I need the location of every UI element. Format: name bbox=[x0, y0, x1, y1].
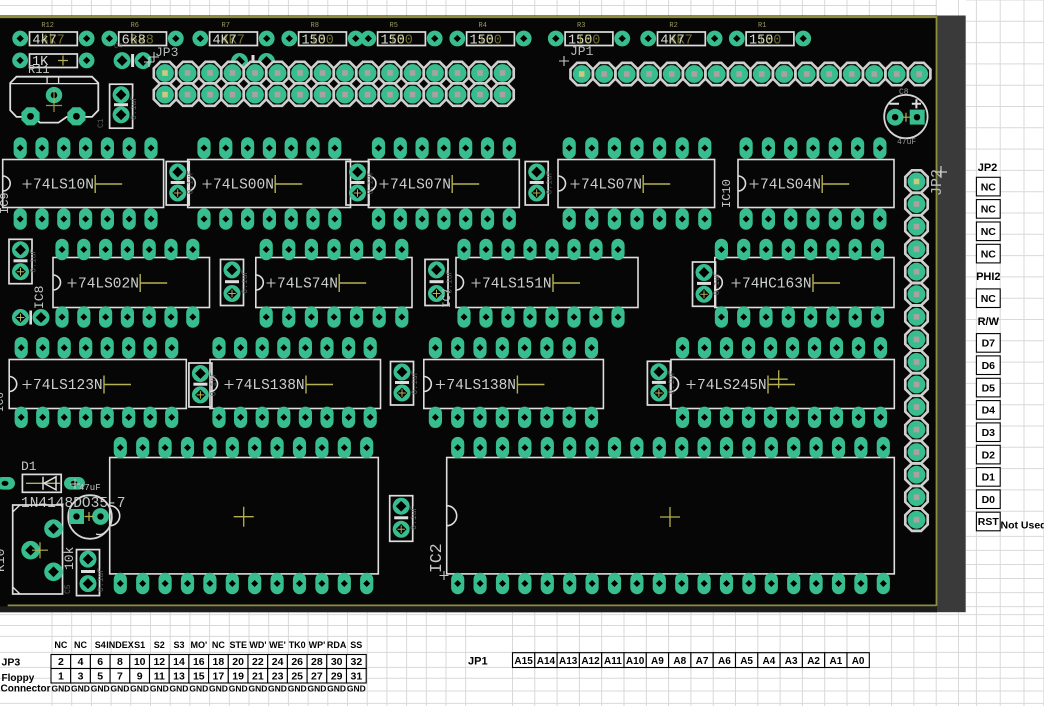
svg-text:8: 8 bbox=[117, 656, 123, 668]
svg-text:GND: GND bbox=[268, 684, 287, 694]
svg-text:JP1: JP1 bbox=[570, 44, 594, 59]
svg-text:GND: GND bbox=[111, 684, 130, 694]
svg-text:A8: A8 bbox=[673, 656, 686, 667]
svg-text:S2: S2 bbox=[154, 640, 165, 650]
svg-text:GND: GND bbox=[307, 684, 326, 694]
svg-text:0.1uF: 0.1uF bbox=[209, 372, 218, 396]
svg-text:D2: D2 bbox=[982, 449, 996, 461]
svg-text:GND: GND bbox=[130, 684, 149, 694]
svg-text:R7: R7 bbox=[222, 22, 230, 30]
svg-text:23: 23 bbox=[272, 671, 284, 683]
svg-text:NC: NC bbox=[981, 248, 997, 260]
svg-text:JP2: JP2 bbox=[978, 162, 998, 174]
svg-text:D4: D4 bbox=[982, 405, 996, 417]
svg-text:150: 150 bbox=[757, 34, 781, 49]
svg-text:18: 18 bbox=[213, 656, 225, 668]
svg-text:IC6: IC6 bbox=[0, 392, 7, 412]
svg-text:10k: 10k bbox=[62, 546, 77, 570]
svg-text:JP1: JP1 bbox=[468, 656, 488, 668]
svg-text:25: 25 bbox=[291, 671, 303, 683]
svg-text:INDEX: INDEX bbox=[106, 640, 134, 650]
svg-text:D7: D7 bbox=[982, 338, 996, 350]
svg-text:74LS04N: 74LS04N bbox=[760, 178, 821, 194]
svg-text:30: 30 bbox=[331, 656, 343, 668]
svg-text:4k7: 4k7 bbox=[40, 34, 64, 49]
svg-text:74LS123N: 74LS123N bbox=[33, 378, 103, 394]
svg-text:16: 16 bbox=[193, 656, 205, 668]
svg-text:3: 3 bbox=[78, 671, 84, 683]
svg-text:R4: R4 bbox=[479, 22, 487, 30]
svg-text:MO': MO' bbox=[190, 640, 207, 650]
svg-text:WE': WE' bbox=[269, 640, 286, 650]
svg-text:C1: C1 bbox=[97, 118, 106, 128]
svg-text:22: 22 bbox=[252, 656, 264, 668]
svg-text:IC8: IC8 bbox=[32, 286, 47, 309]
svg-text:R6: R6 bbox=[131, 22, 139, 30]
svg-text:NC: NC bbox=[212, 640, 225, 650]
svg-text:A7: A7 bbox=[696, 656, 709, 667]
svg-text:74LS138N: 74LS138N bbox=[446, 378, 516, 394]
svg-text:D0: D0 bbox=[982, 494, 996, 506]
svg-text:PHI2: PHI2 bbox=[976, 271, 1000, 283]
svg-text:4K7: 4K7 bbox=[668, 34, 692, 49]
svg-text:2: 2 bbox=[58, 656, 64, 668]
svg-text:0.1uF: 0.1uF bbox=[411, 370, 420, 394]
svg-text:0.1uF: 0.1uF bbox=[30, 249, 39, 273]
svg-text:R10: R10 bbox=[0, 549, 8, 572]
svg-text:R3: R3 bbox=[577, 22, 585, 30]
svg-text:TK0: TK0 bbox=[289, 640, 306, 650]
svg-text:C8: C8 bbox=[899, 88, 909, 97]
svg-text:A10: A10 bbox=[626, 656, 645, 667]
svg-text:NC: NC bbox=[981, 226, 997, 238]
svg-text:JP2: JP2 bbox=[929, 169, 946, 196]
svg-text:D1: D1 bbox=[982, 472, 996, 484]
svg-text:1: 1 bbox=[58, 671, 64, 683]
svg-text:A0: A0 bbox=[852, 656, 865, 667]
svg-text:0.1uF: 0.1uF bbox=[130, 96, 139, 120]
svg-text:4K7: 4K7 bbox=[221, 34, 245, 49]
svg-text:GND: GND bbox=[150, 684, 169, 694]
svg-text:C4: C4 bbox=[114, 43, 122, 51]
svg-text:JP3: JP3 bbox=[2, 657, 21, 669]
svg-text:A1: A1 bbox=[830, 656, 843, 667]
svg-text:GND: GND bbox=[327, 684, 346, 694]
svg-text:74LS245N: 74LS245N bbox=[697, 378, 767, 394]
svg-text:A6: A6 bbox=[718, 656, 731, 667]
svg-text:4: 4 bbox=[78, 656, 84, 668]
svg-text:R2: R2 bbox=[669, 22, 677, 30]
svg-text:R/W: R/W bbox=[978, 316, 1000, 328]
svg-text:12: 12 bbox=[153, 656, 165, 668]
svg-text:GND: GND bbox=[288, 684, 307, 694]
svg-text:A2: A2 bbox=[807, 656, 820, 667]
svg-text:NC: NC bbox=[74, 640, 87, 650]
svg-text:74LS07N: 74LS07N bbox=[581, 178, 642, 194]
svg-text:JP3: JP3 bbox=[155, 45, 178, 60]
svg-text:A14: A14 bbox=[537, 656, 556, 667]
svg-text:R11: R11 bbox=[28, 63, 50, 77]
svg-text:D1: D1 bbox=[21, 459, 37, 474]
svg-text:STE: STE bbox=[229, 640, 247, 650]
svg-text:NC: NC bbox=[981, 204, 997, 216]
svg-text:D3: D3 bbox=[982, 427, 996, 439]
svg-text:S3: S3 bbox=[173, 640, 184, 650]
svg-text:74LS10N: 74LS10N bbox=[33, 178, 94, 194]
svg-text:24: 24 bbox=[272, 656, 284, 668]
svg-text:A9: A9 bbox=[651, 656, 664, 667]
svg-text:32: 32 bbox=[351, 656, 363, 668]
svg-text:74LS74N: 74LS74N bbox=[277, 277, 338, 293]
svg-text:A12: A12 bbox=[581, 656, 600, 667]
svg-text:11: 11 bbox=[154, 671, 165, 683]
svg-text:27: 27 bbox=[311, 671, 323, 683]
svg-text:Floppy: Floppy bbox=[2, 673, 35, 684]
svg-text:S1: S1 bbox=[134, 640, 145, 650]
svg-text:0.1uF: 0.1uF bbox=[367, 170, 376, 194]
svg-text:WD': WD' bbox=[249, 640, 266, 650]
svg-text:D5: D5 bbox=[982, 382, 996, 394]
svg-text:GND: GND bbox=[170, 684, 189, 694]
svg-text:47uF: 47uF bbox=[79, 483, 101, 493]
svg-text:9: 9 bbox=[137, 671, 143, 683]
svg-text:S4: S4 bbox=[95, 640, 106, 650]
svg-text:GND: GND bbox=[209, 684, 228, 694]
svg-text:15: 15 bbox=[193, 671, 205, 683]
svg-text:7: 7 bbox=[117, 671, 123, 683]
svg-text:GND: GND bbox=[189, 684, 208, 694]
svg-text:28: 28 bbox=[311, 656, 323, 668]
svg-text:NC: NC bbox=[981, 293, 997, 305]
svg-text:R12: R12 bbox=[41, 22, 54, 30]
svg-text:74LS02N: 74LS02N bbox=[78, 277, 139, 293]
svg-text:17: 17 bbox=[213, 671, 225, 683]
svg-text:150: 150 bbox=[389, 34, 413, 49]
svg-text:74LS07N: 74LS07N bbox=[390, 178, 451, 194]
svg-text:R5: R5 bbox=[390, 22, 398, 30]
svg-text:A13: A13 bbox=[559, 656, 578, 667]
svg-text:A4: A4 bbox=[763, 656, 776, 667]
svg-text:WP': WP' bbox=[309, 640, 326, 650]
svg-text:13: 13 bbox=[173, 671, 185, 683]
svg-text:GND: GND bbox=[71, 684, 90, 694]
svg-text:IC10: IC10 bbox=[720, 179, 734, 208]
svg-text:GND: GND bbox=[347, 684, 366, 694]
svg-text:74LS151N: 74LS151N bbox=[482, 277, 552, 293]
svg-text:GND: GND bbox=[229, 684, 248, 694]
svg-text:Not Used: Not Used bbox=[1001, 520, 1044, 532]
svg-text:NC: NC bbox=[54, 640, 67, 650]
svg-text:20: 20 bbox=[232, 656, 244, 668]
svg-text:RST: RST bbox=[978, 516, 1000, 528]
svg-text:A15: A15 bbox=[514, 656, 533, 667]
svg-text:0.1uF: 0.1uF bbox=[713, 271, 722, 295]
svg-text:5: 5 bbox=[97, 671, 103, 683]
svg-text:GND: GND bbox=[248, 684, 267, 694]
svg-text:A11: A11 bbox=[604, 656, 622, 667]
svg-text:47uF: 47uF bbox=[897, 138, 916, 147]
svg-text:GND: GND bbox=[91, 684, 110, 694]
svg-text:0.1uF: 0.1uF bbox=[97, 568, 106, 592]
svg-text:D6: D6 bbox=[982, 360, 996, 372]
svg-text:0.1uF: 0.1uF bbox=[410, 506, 419, 530]
svg-text:31: 31 bbox=[351, 671, 363, 683]
svg-text:Connector: Connector bbox=[1, 684, 51, 695]
svg-text:29: 29 bbox=[331, 671, 343, 683]
svg-text:IC2: IC2 bbox=[427, 543, 446, 573]
svg-text:6k8: 6k8 bbox=[130, 34, 154, 49]
svg-text:14: 14 bbox=[173, 656, 185, 668]
svg-text:SS: SS bbox=[350, 640, 362, 650]
svg-text:150: 150 bbox=[478, 34, 502, 49]
svg-text:IC7: IC7 bbox=[442, 288, 454, 308]
svg-text:R8: R8 bbox=[311, 22, 319, 30]
svg-text:150: 150 bbox=[310, 34, 334, 49]
svg-text:C5: C5 bbox=[64, 584, 73, 594]
svg-text:A5: A5 bbox=[740, 656, 753, 667]
svg-text:0.1uF: 0.1uF bbox=[241, 269, 250, 293]
svg-text:74HC163N: 74HC163N bbox=[742, 277, 812, 293]
svg-text:6: 6 bbox=[97, 656, 103, 668]
svg-text:0.1uF: 0.1uF bbox=[668, 370, 677, 394]
svg-text:74LS138N: 74LS138N bbox=[235, 378, 305, 394]
svg-text:R1: R1 bbox=[758, 22, 766, 30]
svg-text:74LS00N: 74LS00N bbox=[213, 178, 274, 194]
svg-text:NC: NC bbox=[981, 181, 997, 193]
svg-text:19: 19 bbox=[232, 671, 244, 683]
svg-text:0.1uF: 0.1uF bbox=[546, 170, 555, 194]
svg-text:A3: A3 bbox=[785, 656, 798, 667]
svg-text:IC9: IC9 bbox=[0, 192, 12, 214]
svg-text:10: 10 bbox=[134, 656, 146, 668]
svg-text:RDA: RDA bbox=[327, 640, 347, 650]
svg-text:GND: GND bbox=[51, 684, 70, 694]
svg-text:26: 26 bbox=[291, 656, 303, 668]
svg-text:0.1uF: 0.1uF bbox=[187, 170, 196, 194]
svg-text:21: 21 bbox=[252, 671, 264, 683]
